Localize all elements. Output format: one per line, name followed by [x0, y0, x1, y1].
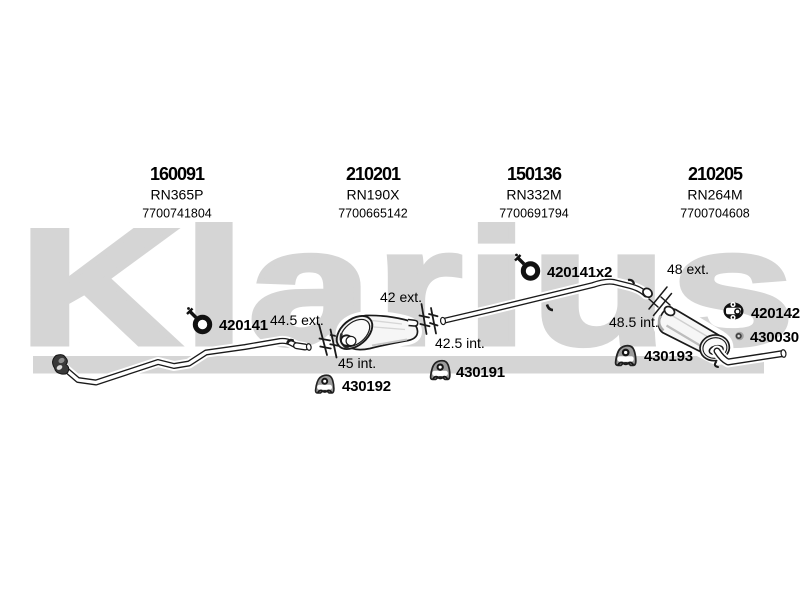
svg-text:430191: 430191 — [456, 364, 505, 381]
svg-text:430030: 430030 — [750, 329, 799, 346]
svg-text:7700665142: 7700665142 — [338, 207, 408, 221]
svg-text:RN264M: RN264M — [687, 187, 742, 203]
svg-text:44.5 ext.: 44.5 ext. — [270, 312, 324, 328]
svg-text:420141: 420141 — [219, 317, 268, 334]
svg-text:420141x2: 420141x2 — [547, 264, 612, 281]
svg-text:RN365P: RN365P — [151, 187, 204, 203]
svg-text:7700691794: 7700691794 — [499, 207, 569, 221]
svg-text:45 int.: 45 int. — [338, 355, 376, 371]
svg-text:48 ext.: 48 ext. — [667, 261, 709, 277]
svg-text:RN332M: RN332M — [506, 187, 561, 203]
svg-text:42.5 int.: 42.5 int. — [435, 335, 485, 351]
svg-text:42 ext.: 42 ext. — [380, 289, 422, 305]
svg-text:430192: 430192 — [342, 378, 391, 395]
svg-text:430193: 430193 — [644, 348, 693, 365]
svg-text:160091: 160091 — [150, 164, 205, 184]
svg-text:210205: 210205 — [688, 164, 743, 184]
svg-text:7700704608: 7700704608 — [680, 207, 750, 221]
svg-text:210201: 210201 — [346, 164, 401, 184]
svg-text:420142: 420142 — [751, 305, 800, 322]
svg-text:RN190X: RN190X — [347, 187, 401, 203]
svg-text:7700741804: 7700741804 — [142, 207, 212, 221]
svg-text:150136: 150136 — [507, 164, 562, 184]
svg-text:48.5 int.: 48.5 int. — [609, 314, 659, 330]
